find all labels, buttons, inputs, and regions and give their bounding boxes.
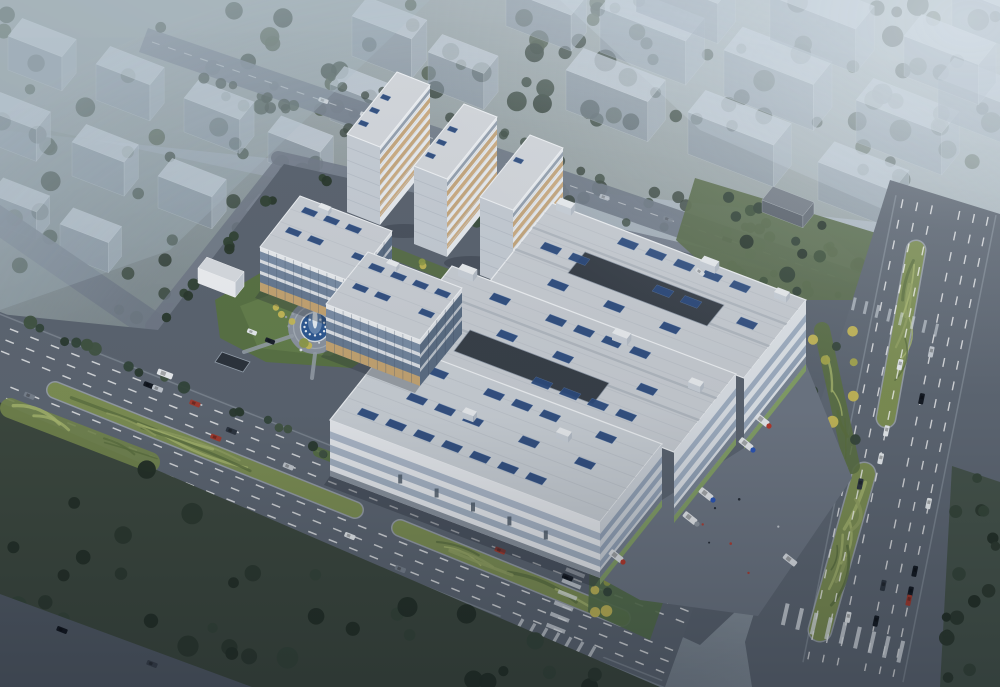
industrial-campus-aerial-rendering [0,0,1000,687]
vignette-bottom [0,0,1000,687]
aerial-rendering-stage [0,0,1000,687]
